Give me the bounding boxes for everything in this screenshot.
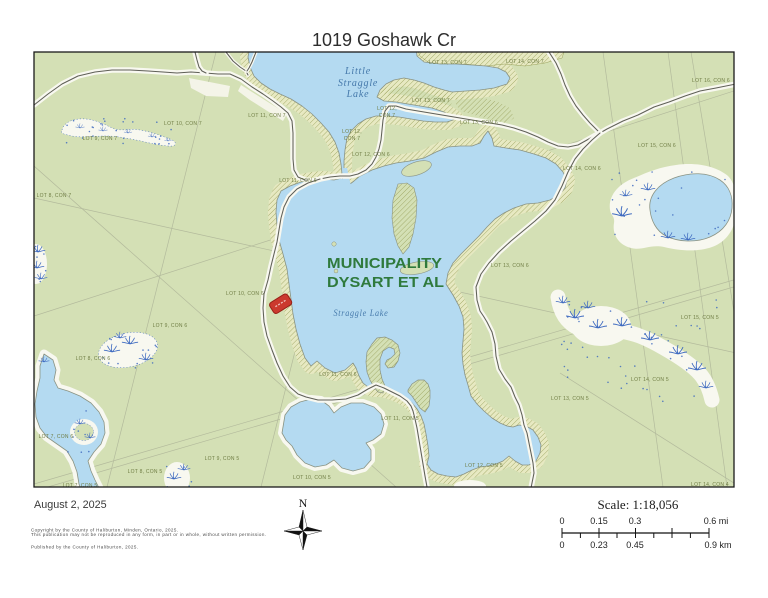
svg-text:LOT 8, CON 5: LOT 8, CON 5 [128,469,163,475]
svg-text:0.15: 0.15 [590,516,608,526]
svg-text:LOT 14, CON 6: LOT 14, CON 6 [563,166,601,172]
svg-text:LOT 12,: LOT 12, [377,106,397,112]
svg-text:LOT 9, CON 7: LOT 9, CON 7 [83,136,118,142]
svg-text:0: 0 [559,540,564,550]
svg-text:LOT 16, CON 6: LOT 16, CON 6 [692,78,730,84]
svg-text:LOT 13, CON 6: LOT 13, CON 6 [491,263,529,269]
svg-text:Straggle Lake: Straggle Lake [334,308,389,318]
svg-text:LOT 14, CON 5: LOT 14, CON 5 [631,377,669,383]
svg-text:LOT 13, CON 7: LOT 13, CON 7 [412,98,450,104]
svg-text:LOT 14, CON 7: LOT 14, CON 7 [506,59,544,65]
svg-text:Straggle: Straggle [338,78,378,89]
svg-text:0.3: 0.3 [629,516,642,526]
svg-text:LOT 8, CON 6: LOT 8, CON 6 [76,356,111,362]
svg-text:0.9 km: 0.9 km [704,540,731,550]
svg-text:Published by the County of Hal: Published by the County of Haliburton, 2… [31,545,138,550]
svg-text:1019 Goshawk Cr: 1019 Goshawk Cr [312,30,456,50]
svg-text:Little: Little [344,66,371,77]
svg-text:CON 7: CON 7 [344,136,361,142]
svg-text:LOT 11, CON 7: LOT 11, CON 7 [248,113,286,119]
svg-text:N: N [299,496,308,510]
svg-text:LOT 13, CON 6: LOT 13, CON 6 [460,120,498,126]
svg-text:LOT 15, CON 6: LOT 15, CON 6 [638,143,676,149]
svg-text:LOT 11, CON 6: LOT 11, CON 6 [319,372,357,378]
svg-text:LOT 15, CON 5: LOT 15, CON 5 [681,315,719,321]
svg-text:LOT 7, CON 6: LOT 7, CON 6 [39,434,74,440]
svg-text:LOT 11, CON 6: LOT 11, CON 6 [279,178,317,184]
svg-text:LOT 12, CON 5: LOT 12, CON 5 [465,463,503,469]
svg-text:LOT 11, CON 5: LOT 11, CON 5 [381,416,419,422]
svg-text:LOT 10, CON 5: LOT 10, CON 5 [293,475,331,481]
svg-text:This publication may not be re: This publication may not be reproduced i… [31,532,266,537]
svg-text:LOT 12, CON 6: LOT 12, CON 6 [352,152,390,158]
svg-text:Lake: Lake [346,89,370,100]
svg-text:0.23: 0.23 [590,540,608,550]
svg-text:Scale: 1:18,056: Scale: 1:18,056 [598,497,679,512]
svg-text:0: 0 [559,516,564,526]
svg-text:0.6 mi: 0.6 mi [704,516,729,526]
svg-text:DYSART ET AL: DYSART ET AL [327,274,444,291]
svg-text:0.45: 0.45 [626,540,644,550]
svg-text:LOT 13, CON 5: LOT 13, CON 5 [551,396,589,402]
svg-text:LOT 8, CON 7: LOT 8, CON 7 [37,193,72,199]
svg-text:MUNICIPALITY: MUNICIPALITY [327,255,442,272]
svg-text:LOT 9, CON 5: LOT 9, CON 5 [205,456,240,462]
svg-text:LOT 9, CON 6: LOT 9, CON 6 [153,323,188,329]
svg-text:LOT 10, CON 6: LOT 10, CON 6 [226,291,264,297]
svg-text:CON 7: CON 7 [379,113,396,119]
svg-text:LOT 10, CON 7: LOT 10, CON 7 [164,121,202,127]
svg-text:August 2, 2025: August 2, 2025 [34,499,107,511]
svg-text:LOT 13, CON 7: LOT 13, CON 7 [429,60,467,66]
svg-text:LOT 12,: LOT 12, [342,129,362,135]
